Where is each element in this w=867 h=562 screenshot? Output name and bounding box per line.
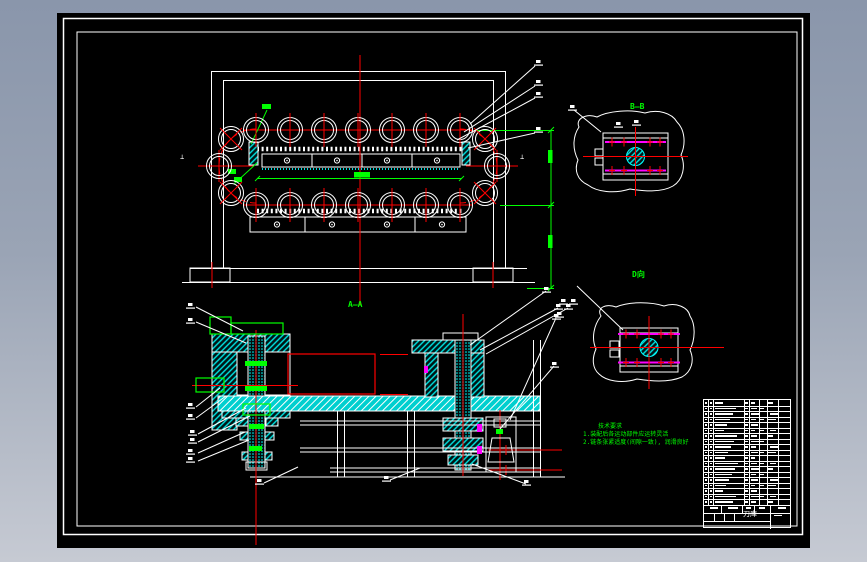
detail-b-label: B—B (630, 103, 644, 111)
detail-d-label: D向 (632, 271, 645, 279)
cad-viewport: A—A B—B D向 ⊥ ⊥ 技术要求 1.装配后各运动部件应运转灵活 2.链条… (0, 0, 867, 562)
datum-symbol-left: ⊥ (180, 154, 184, 161)
datum-symbol-right: ⊥ (520, 154, 524, 161)
tech-notes-line1: 1.装配后各运动部件应运转灵活 (583, 432, 668, 438)
tech-notes-line2: 2.链条张紧适度(间隙一致), 润滑良好 (583, 440, 689, 446)
title-block-product: 刀库 (733, 511, 767, 518)
bom-table (703, 399, 791, 528)
section-label: A—A (348, 301, 362, 309)
drawing-canvas (57, 13, 810, 548)
tech-notes-title: 技术要求 (598, 424, 622, 430)
